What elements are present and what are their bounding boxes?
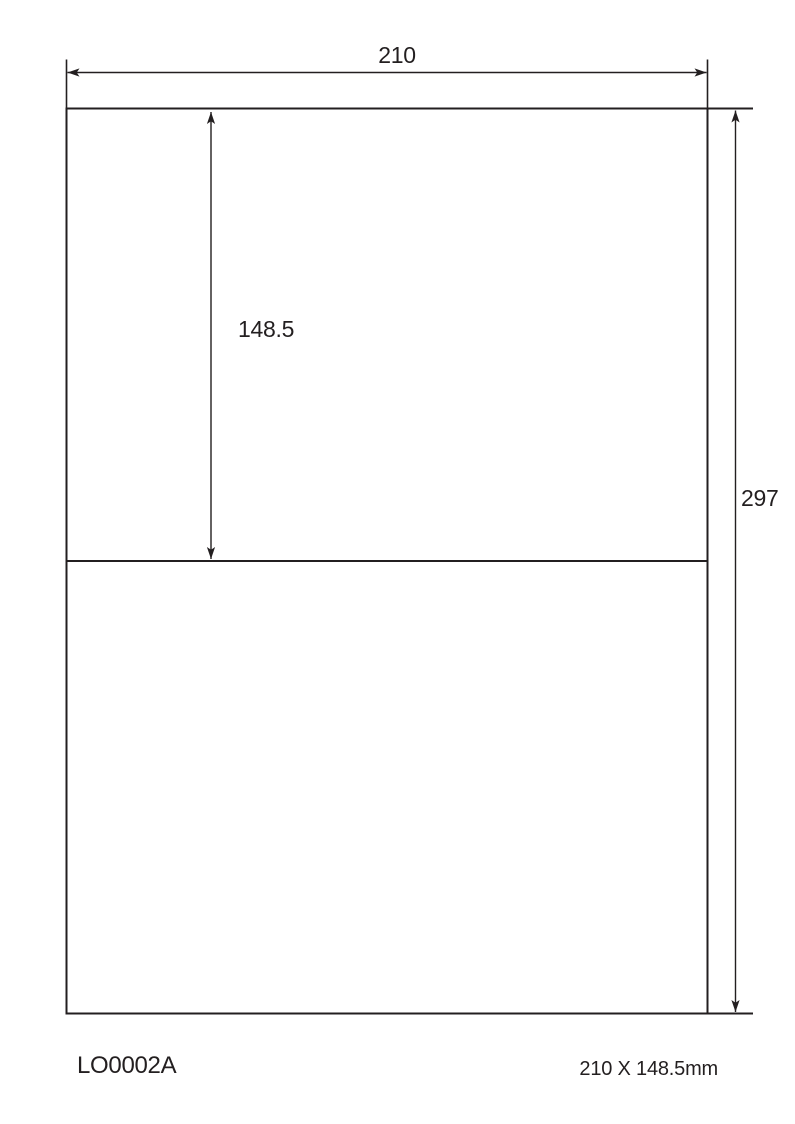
width-dimension-label: 210 [378,42,415,68]
size-text-label: 210 X 148.5mm [579,1058,718,1080]
label-height-dimension-label: 148.5 [238,316,294,342]
diagram-canvas: 210 148.5 297 LO0002A 210 X 148.5mm [0,0,795,1124]
sheet-height-dimension-label: 297 [741,485,778,511]
product-code-label: LO0002A [77,1052,177,1079]
label-sheet-diagram: 210 148.5 297 LO0002A 210 X 148.5mm [0,0,795,1124]
diagram-lines [67,60,754,1014]
